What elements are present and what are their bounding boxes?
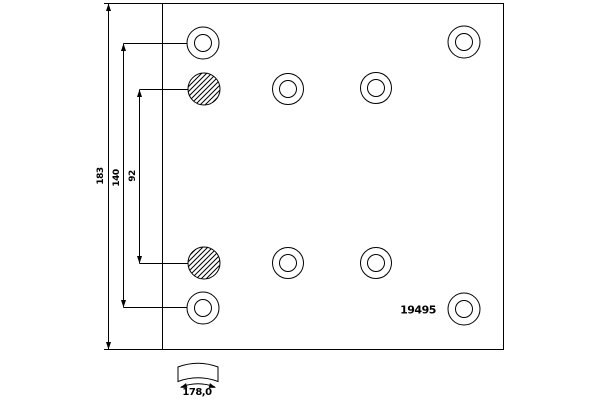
- hole-plain: [187, 292, 219, 324]
- hole-plain: [361, 73, 392, 104]
- dim-label-outer-hole-spacing: 140: [112, 169, 122, 187]
- brake-lining-diagram: 183 140 92: [0, 0, 600, 400]
- arrowhead-down-icon: [121, 300, 126, 308]
- dim-label-inner-hole-spacing: 92: [128, 170, 138, 182]
- arrowhead-down-icon: [106, 342, 111, 350]
- hole-plain: [361, 248, 392, 279]
- arrowhead-up-icon: [137, 90, 142, 98]
- arrowhead-up-icon: [121, 44, 126, 52]
- arc-width-label: 178,0: [182, 387, 212, 398]
- arc-profile: 178,0: [178, 363, 218, 398]
- part-number-label: 19495: [400, 304, 436, 317]
- dim-total-height: 183: [96, 4, 111, 350]
- hole-hatched: [188, 247, 220, 279]
- technical-drawing-canvas: 183 140 92: [0, 0, 600, 400]
- arrowhead-up-icon: [106, 4, 111, 12]
- lining-side-profile: [178, 363, 218, 381]
- hole-plain: [187, 27, 219, 59]
- dim-label-total-height: 183: [96, 167, 106, 185]
- hole-plain: [448, 26, 480, 58]
- hole-hatched: [188, 73, 220, 105]
- hole-plain: [273, 74, 304, 105]
- hole-plain: [448, 293, 480, 325]
- arrowhead-down-icon: [137, 256, 142, 264]
- hole-plain: [273, 248, 304, 279]
